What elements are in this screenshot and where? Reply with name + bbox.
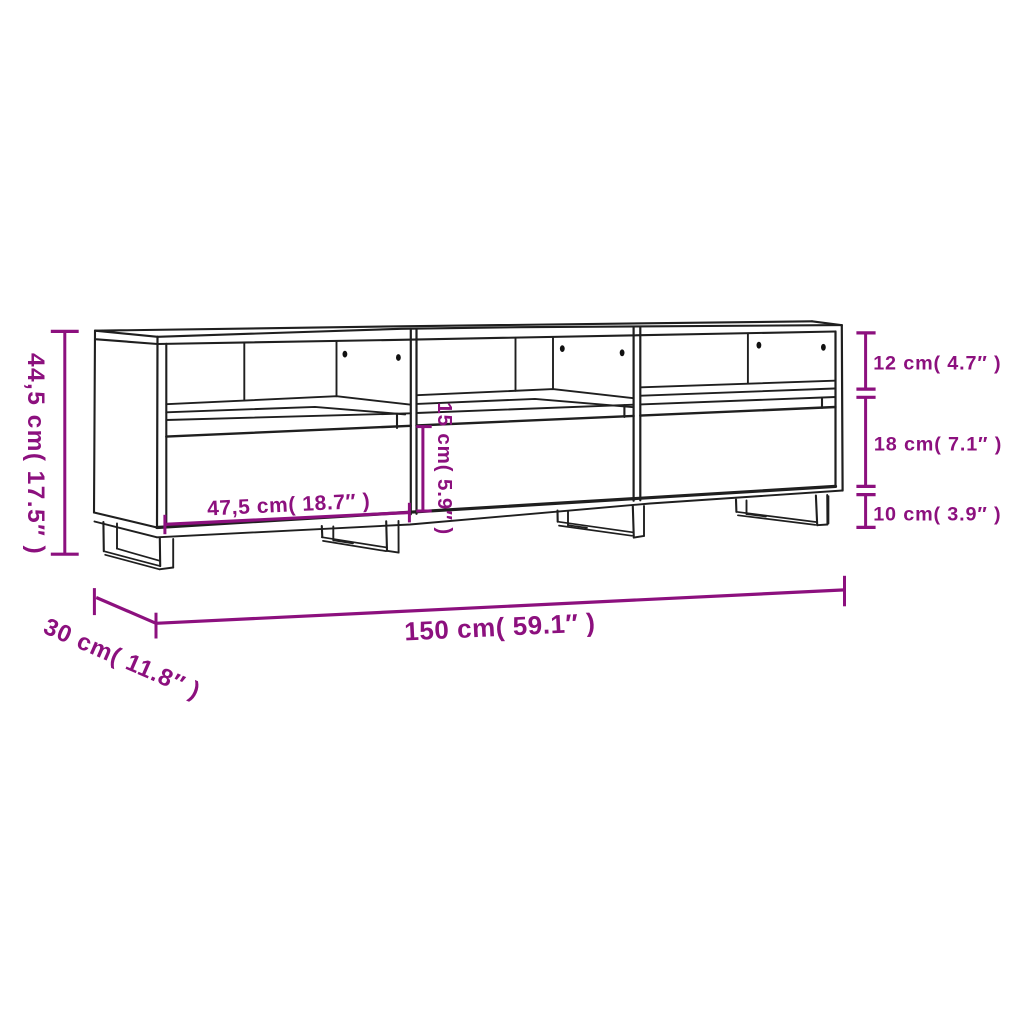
svg-text:44,5 cm( 17.5″ ): 44,5 cm( 17.5″ ) [22, 353, 49, 555]
svg-text:12 cm( 4.7″ ): 12 cm( 4.7″ ) [873, 352, 1001, 374]
svg-text:18 cm( 7.1″ ): 18 cm( 7.1″ ) [874, 434, 1002, 456]
svg-text:10 cm( 3.9″ ): 10 cm( 3.9″ ) [873, 503, 1001, 525]
svg-text:15 cm( 5.9″ ): 15 cm( 5.9″ ) [433, 402, 456, 535]
